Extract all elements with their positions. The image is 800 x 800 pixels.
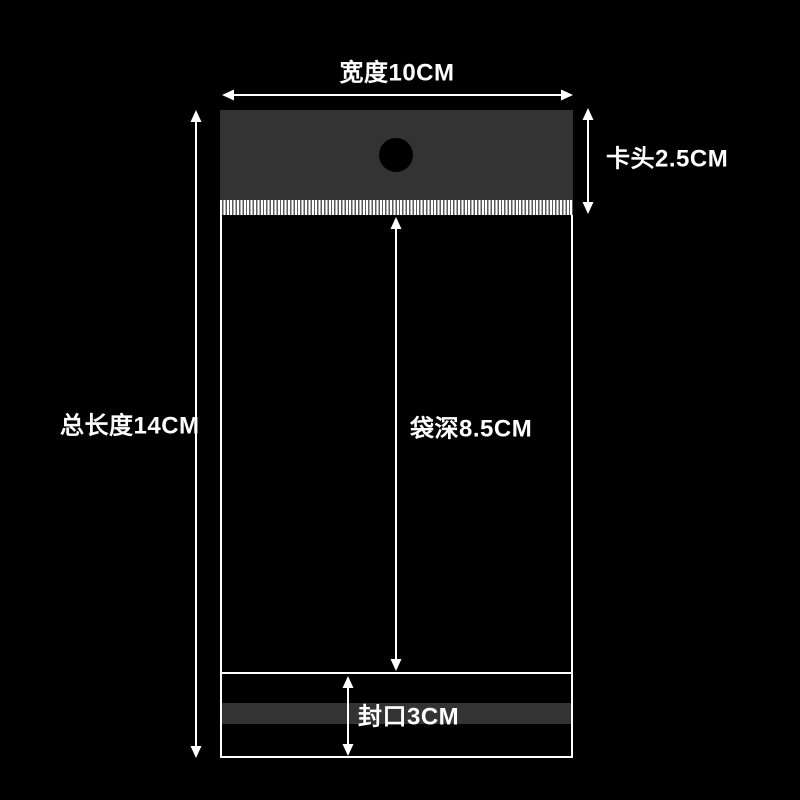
total-length-arrow-head-top [191,110,202,122]
seal-label: 封口3CM [358,697,459,732]
width-arrow-head-left [222,90,234,101]
tear-off-stripe-edge [220,200,573,215]
total-length-arrow-head-bottom [191,746,202,758]
header-clip-label: 卡头2.5CM [606,139,728,174]
width-arrow [222,90,573,101]
width-label: 宽度10CM [339,53,454,88]
bag-body [220,215,573,758]
bag-depth-label: 袋深8.5CM [410,409,532,444]
total-length-label: 总长度14CM [60,406,200,441]
header-clip-arrow-head-bottom [583,202,594,214]
width-arrow-head-right [561,90,573,101]
seal-divider-line [222,672,571,674]
hang-hole [379,138,413,172]
header-clip-arrow [583,108,594,214]
header-clip-arrow-head-top [583,108,594,120]
diagram-canvas: 宽度10CM 卡头2.5CM 总长度14CM 袋深8.5CM 封口3CM [0,0,800,800]
bag-header-flap [220,110,573,200]
